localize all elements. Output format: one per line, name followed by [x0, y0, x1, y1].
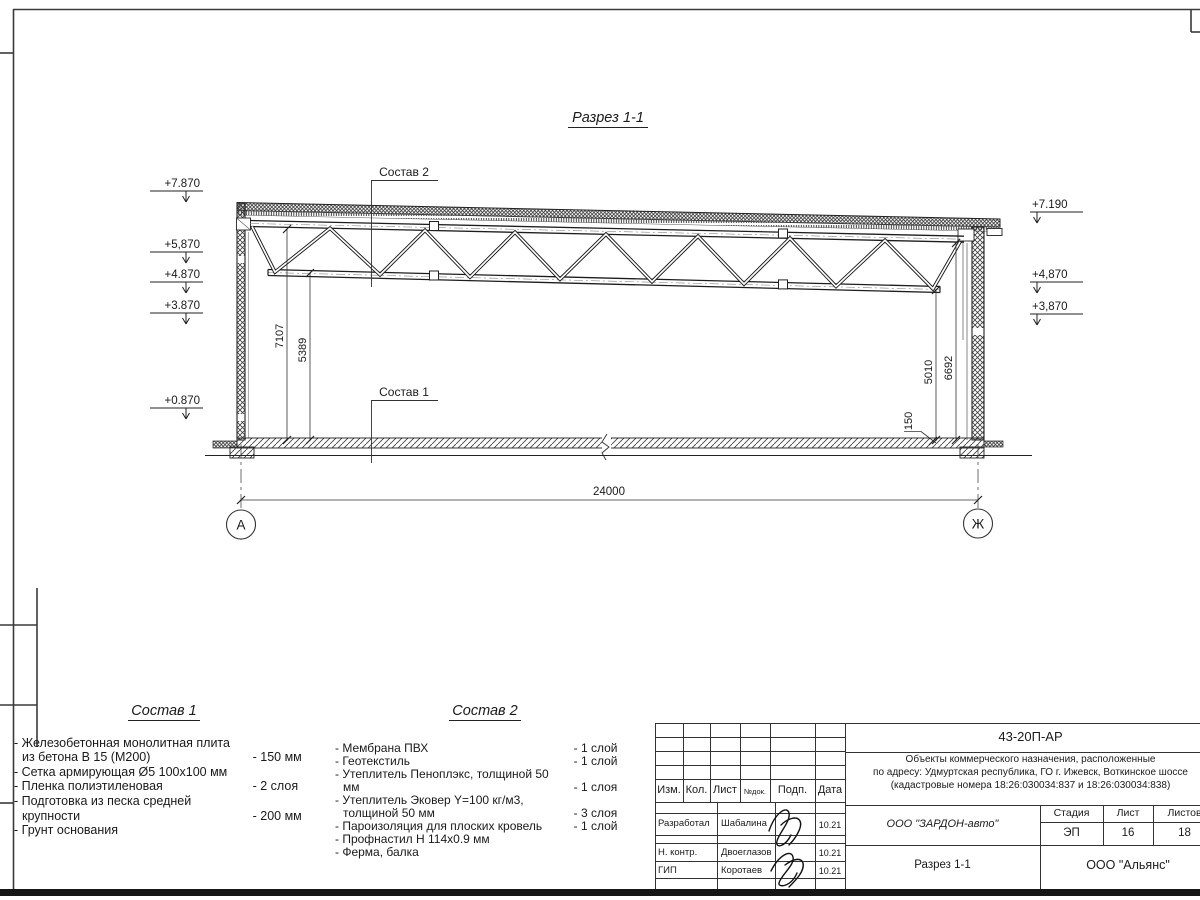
stamp-address-line3: (кадастровые номера 18:26:030034:837 и 1… — [845, 780, 1200, 791]
list-item: - Геотекстиль - 1 слой — [335, 755, 635, 768]
stamp-doc-code: 43-20П-АР — [845, 729, 1200, 744]
list-item: - Подготовка из песка средней крупности … — [14, 794, 314, 823]
stamp-role-developer: Разработал — [658, 818, 710, 829]
list-item: - Пленка полиэтиленовая - 2 слоя — [14, 779, 314, 794]
stamp-address-line2: по адресу: Удмуртская республика, ГО г. … — [845, 767, 1200, 778]
elevation-value: +5,870 — [165, 239, 201, 251]
dim-6692: 6692 — [943, 356, 955, 380]
list-item: - Утеплитель Пеноплэкс, толщиной 50 мм -… — [335, 768, 635, 794]
vertical-dimensions: 7107 5389 5010 6692 150 — [274, 225, 960, 445]
dim-5389: 5389 — [297, 338, 309, 362]
stamp-col-data: Дата — [815, 784, 845, 796]
stamp-org-project: ООО "ЗАРДОН-авто" — [845, 818, 1040, 830]
elevation-value: +0.870 — [165, 395, 201, 407]
composition-1-title: Состав 1 — [14, 704, 314, 719]
stamp-sheets-total: 18 — [1153, 827, 1200, 839]
drawing-title: Разрез 1-1 — [520, 110, 696, 126]
axis-letter: Ж — [972, 517, 985, 532]
dim-5010: 5010 — [923, 360, 935, 384]
stamp-stage-value: ЭП — [1040, 827, 1103, 839]
stamp-org-customer: ООО "Альянс" — [1040, 858, 1200, 872]
roof-truss — [250, 221, 964, 293]
stamp-col-izm: Изм. — [655, 784, 683, 796]
dim-7107: 7107 — [274, 324, 286, 348]
stamp-date-1: 10.21 — [815, 820, 845, 830]
truss-web-members — [252, 227, 960, 289]
callout-floor: Состав 1 — [371, 385, 438, 463]
composition-list-2: Состав 2 - Мембрана ПВХ - 1 слой - Геоте… — [335, 704, 635, 859]
svg-text:Состав 1: Состав 1 — [379, 385, 429, 399]
foundation-left — [230, 447, 254, 458]
stamp-col-podp: Подп. — [770, 784, 815, 796]
elevation-value: +3,870 — [1032, 301, 1068, 313]
axis-letter: А — [236, 518, 245, 533]
axis-bubble-right: Ж — [964, 509, 993, 538]
list-item: - Мембрана ПВХ - 1 слой — [335, 742, 635, 755]
list-item: - Грунт основания — [14, 823, 314, 838]
list-item: - Профнастил Н 114х0.9 мм — [335, 833, 635, 846]
stamp-name-gip: Коротаев — [721, 865, 762, 876]
stamp-sheet-label: Лист — [1103, 807, 1153, 819]
stamp-role-gip: ГИП — [658, 865, 677, 876]
stamp-name-developer: Шабалина — [721, 818, 767, 829]
stamp-role-ncontrol: Н. контр. — [658, 847, 697, 858]
dim-150: 150 — [903, 412, 915, 430]
elevation-marks-right: +7.190 +4,870 +3,870 — [1030, 199, 1083, 325]
left-wall — [236, 203, 250, 440]
composition-2-title: Состав 2 — [335, 704, 635, 719]
stamp-col-ndoc: №док. — [740, 787, 770, 796]
floor-edge-right — [984, 441, 1003, 447]
list-item: - Сетка армирующая Ø5 100х100 мм — [14, 765, 314, 780]
span-dimension: 24000 — [237, 444, 982, 540]
elevation-value: +7.870 — [165, 178, 201, 190]
elevation-value: +4.870 — [165, 269, 201, 281]
roof-end-plate — [987, 229, 1002, 236]
stamp-name-ncontrol: Двоеглазов — [721, 847, 772, 858]
drawing-sheet: +7.870 +5,870 +4.870 +3.870 +0.870 +7.19… — [0, 0, 1200, 900]
stamp-section-title: Разрез 1-1 — [845, 859, 1040, 871]
list-item: - Утеплитель Эковер Y=100 кг/м3, толщино… — [335, 794, 635, 820]
elevation-value: +7.190 — [1032, 199, 1068, 211]
list-item: - Железобетонная монолитная плита из бет… — [14, 736, 314, 765]
list-item: - Ферма, балка — [335, 846, 635, 859]
stamp-stage-label: Стадия — [1040, 807, 1103, 819]
elevation-value: +4,870 — [1032, 269, 1068, 281]
dim-24000: 24000 — [593, 486, 625, 498]
signature-scribbles — [765, 803, 819, 889]
elevation-value: +3.870 — [165, 300, 201, 312]
stamp-date-2: 10.21 — [815, 848, 845, 858]
callout-roof: Состав 2 — [371, 165, 438, 287]
stamp-col-list: Лист — [710, 784, 740, 796]
svg-text:Состав 2: Состав 2 — [379, 165, 429, 179]
stamp-sheets-label: Листов — [1153, 807, 1200, 819]
title-block: Изм. Кол. Лист №док. Подп. Дата Разработ… — [655, 723, 1200, 889]
composition-list-1: Состав 1 - Железобетонная монолитная пли… — [14, 704, 314, 838]
foundation-right — [960, 447, 984, 458]
stamp-address-line1: Объекты коммерческого назначения, распол… — [845, 754, 1200, 765]
axis-bubble-left: А — [227, 510, 256, 539]
stamp-sheet-number: 16 — [1103, 827, 1153, 839]
floor-slab — [213, 434, 1003, 460]
list-item: - Пароизоляция для плоских кровель - 1 с… — [335, 820, 635, 833]
elevation-marks-left: +7.870 +5,870 +4.870 +3.870 +0.870 — [150, 178, 203, 419]
sheet-bottom-bar — [0, 889, 1200, 896]
stamp-col-kol: Кол. — [683, 784, 710, 796]
right-wall — [958, 227, 985, 440]
stamp-date-3: 10.21 — [815, 866, 845, 876]
